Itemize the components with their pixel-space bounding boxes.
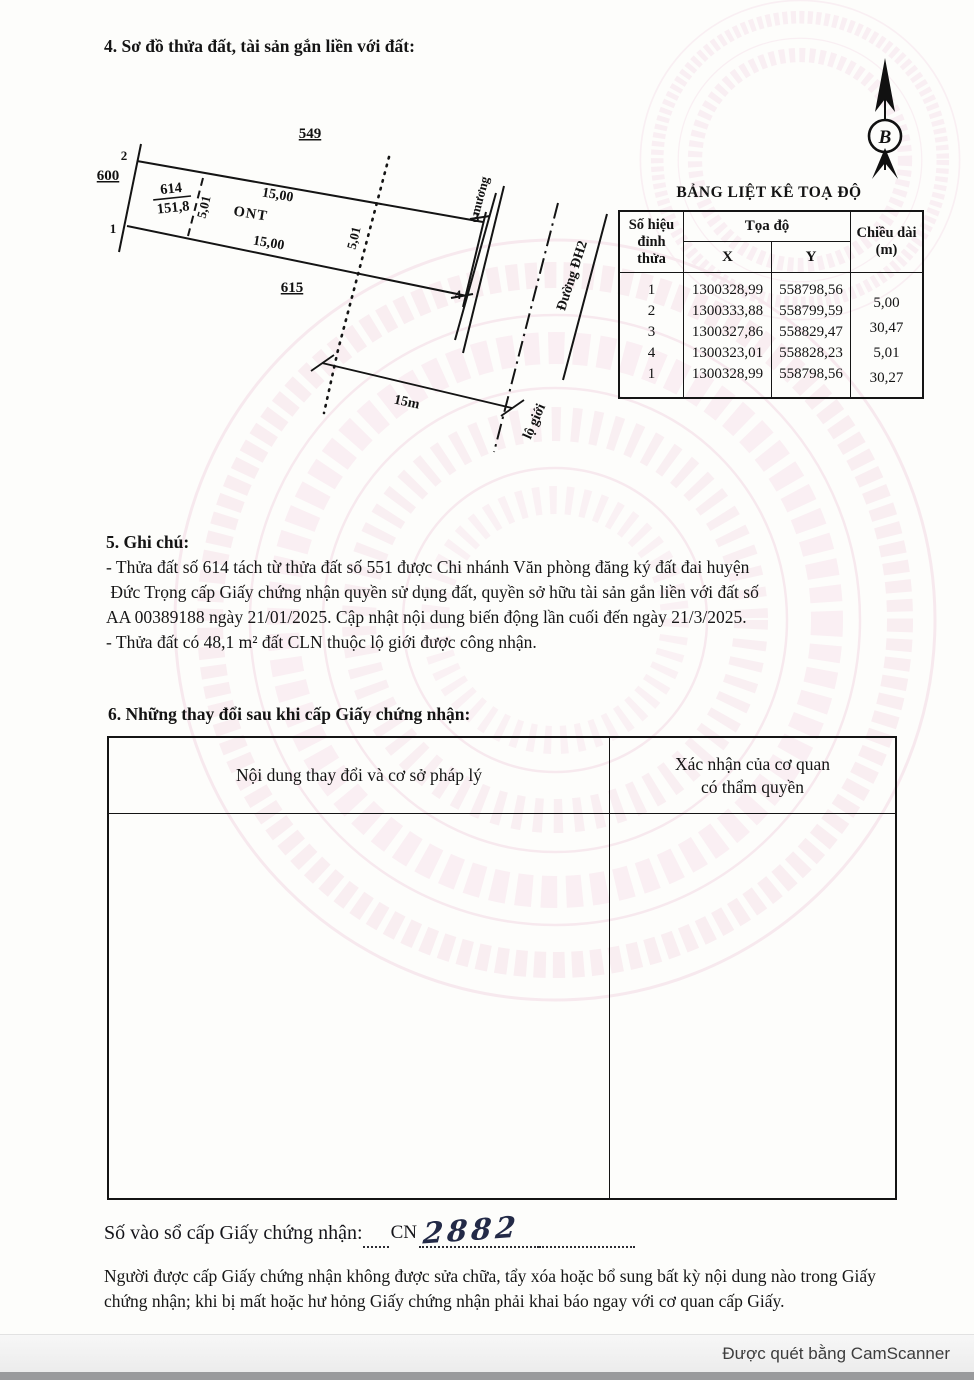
length-value: 30,27 xyxy=(851,366,922,391)
y-value: 558828,23 xyxy=(772,343,850,364)
confirmation-col-header: Xác nhận của cơ quan có thẩm quyền xyxy=(610,738,895,814)
changes-body-cell xyxy=(109,814,610,1198)
y-value: 558798,56 xyxy=(772,364,850,385)
vertex-value: 1 xyxy=(620,280,683,301)
length-column: 5,00 30,47 5,01 30,27 xyxy=(850,272,922,397)
section4-title: 4. Sơ đồ thửa đất, tài sản gắn liền với … xyxy=(104,36,415,57)
dotted-leader xyxy=(539,1222,635,1248)
neighbor-bottom-label: 615 xyxy=(281,280,304,296)
y-value: 558798,56 xyxy=(772,280,850,301)
neighbor-top-label: 549 xyxy=(299,126,322,142)
parcel-area: 151,8 xyxy=(156,198,190,217)
road-width-label: 15m xyxy=(393,393,422,413)
length-value: 5,00 xyxy=(851,291,922,316)
y-value: 558799,59 xyxy=(772,301,850,322)
x-column: 1300328,99 1300333,88 1300327,86 1300323… xyxy=(684,272,772,397)
col-header-coord: Tọa độ xyxy=(684,212,850,242)
registry-label: Số vào sổ cấp Giấy chứng nhận: xyxy=(104,1218,363,1248)
section6-title: 6. Những thay đổi sau khi cấp Giấy chứng… xyxy=(108,704,470,725)
length-value: 30,47 xyxy=(851,316,922,341)
road-name-label: Đường ĐH2 xyxy=(554,239,591,313)
bottom-edge-length: 15,00 xyxy=(252,234,286,254)
vertex-value: 2 xyxy=(620,301,683,322)
disclaimer-text: Người được cấp Giấy chứng nhận không đượ… xyxy=(104,1264,896,1314)
x-value: 1300327,86 xyxy=(684,322,771,343)
confirmation-body-cell xyxy=(610,814,895,1198)
north-letter: B xyxy=(878,127,892,148)
col-header-vertex: Số hiệu đỉnh thửa xyxy=(620,212,684,272)
col-header-y: Y xyxy=(772,242,850,272)
vertex-value: 4 xyxy=(620,343,683,364)
north-arrow: B xyxy=(852,58,918,180)
camscanner-bar: Được quét bằng CamScanner xyxy=(0,1334,974,1372)
vertex-2-label: 2 xyxy=(121,148,128,163)
parcel-boundary xyxy=(119,144,490,307)
x-value: 1300328,99 xyxy=(684,280,771,301)
note-line: AA 00389188 ngày 21/01/2025. Cập nhật nộ… xyxy=(106,605,759,630)
camscanner-label: Được quét bằng CamScanner xyxy=(722,1344,950,1364)
parcel-number: 614 xyxy=(160,180,183,198)
canal-label: mương xyxy=(467,174,492,217)
section5-notes: 5. Ghi chú: - Thửa đất số 614 tách từ th… xyxy=(106,532,759,655)
x-value: 1300328,99 xyxy=(684,364,771,385)
x-value: 1300333,88 xyxy=(684,301,771,322)
neighbor-left-label: 600 xyxy=(97,168,120,184)
camscanner-bottom-strip xyxy=(0,1372,974,1380)
land-type-label: ONT xyxy=(232,203,269,224)
note-line: Đức Trọng cấp Giấy chứng nhận quyền sử d… xyxy=(106,580,759,605)
x-value: 1300323,01 xyxy=(684,343,771,364)
coord-table-title: BẢNG LIỆT KÊ TOẠ ĐỘ xyxy=(618,184,920,202)
confirmation-header-line1: Xác nhận của cơ quan xyxy=(675,753,830,776)
parcel-diagram: 549 600 615 2 1 3 4 5,01 6 xyxy=(80,105,628,477)
vertex-1-label: 1 xyxy=(110,221,117,236)
changes-table: Nội dung thay đổi và cơ sở pháp lý Xác n… xyxy=(107,736,897,1200)
scanned-land-certificate-page: 4. Sơ đồ thửa đất, tài sản gắn liền với … xyxy=(0,0,974,1380)
vertex-value: 3 xyxy=(620,322,683,343)
section5-title: 5. Ghi chú: xyxy=(106,532,759,553)
handwritten-registry-number: 2882 xyxy=(422,1210,521,1251)
dotted-leader xyxy=(363,1222,389,1248)
changes-col-header: Nội dung thay đổi và cơ sở pháp lý xyxy=(109,738,610,814)
right-width-label: 5,01 xyxy=(344,225,364,251)
note-line: - Thửa đất có 48,1 m² đất CLN thuộc lộ g… xyxy=(106,630,759,655)
vertex-value: 1 xyxy=(620,364,683,385)
divider-width-label: 5,01 xyxy=(194,194,214,220)
road-boundary-label: lộ giới xyxy=(520,402,549,442)
vertex-column: 1 2 3 4 1 xyxy=(620,272,684,397)
note-line: - Thửa đất số 614 tách từ thửa đất số 55… xyxy=(106,555,759,580)
registry-number-area: 2882 xyxy=(419,1208,539,1248)
y-column: 558798,56 558799,59 558829,47 558828,23 … xyxy=(772,272,850,397)
registry-line: Số vào sổ cấp Giấy chứng nhận: CN 2882 xyxy=(104,1206,635,1248)
y-value: 558829,47 xyxy=(772,322,850,343)
parcel-number-area: 614 151,8 xyxy=(151,179,192,218)
registry-prefix: CN xyxy=(389,1218,419,1248)
col-header-length: Chiều dài (m) xyxy=(850,212,922,272)
length-value: 5,01 xyxy=(851,341,922,366)
col-header-x: X xyxy=(684,242,772,272)
vertex-4-label: 4 xyxy=(455,287,462,302)
coordinate-table: Số hiệu đỉnh thửa Tọa độ X Y Chiều dài (… xyxy=(618,210,924,399)
confirmation-header-line2: có thẩm quyền xyxy=(701,776,804,799)
